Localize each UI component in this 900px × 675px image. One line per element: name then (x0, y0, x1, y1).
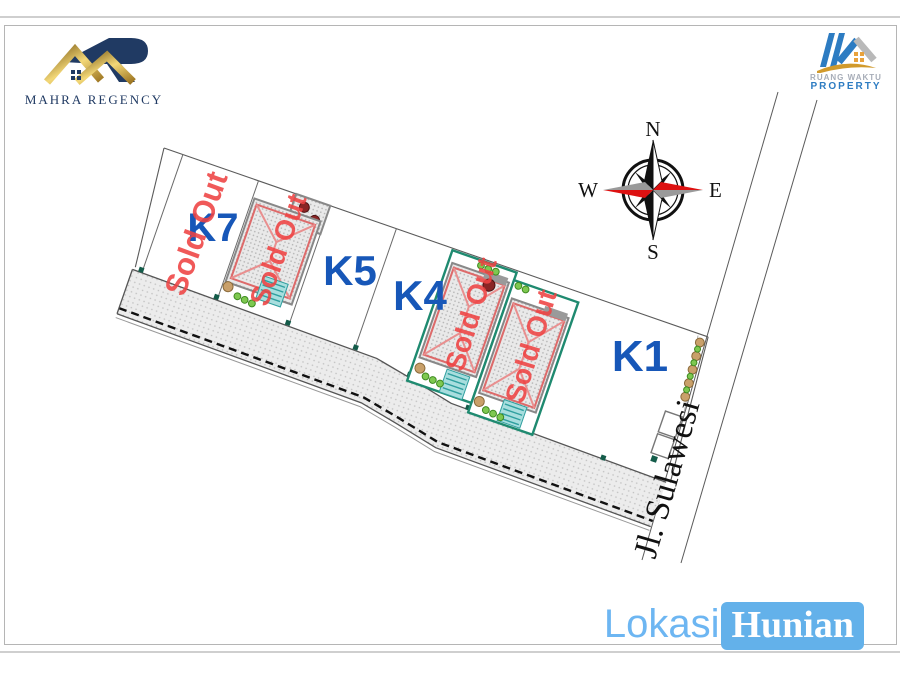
site-plan: K7 K5 K4 K1 Sold Out Sold Out Sold Out S… (0, 0, 900, 675)
compass-main-points (603, 140, 703, 240)
wordmark-hunian-badge: Hunian (721, 602, 864, 650)
lokasi-hunian-wordmark: Lokasi Hunian (604, 602, 864, 650)
compass-rose: N S W E (578, 117, 722, 264)
road-surface (108, 269, 674, 526)
compass-s: S (647, 240, 659, 264)
street-right-edge (681, 100, 817, 563)
road (107, 269, 674, 530)
compass-e: E (709, 178, 722, 202)
wordmark-lokasi: Lokasi (604, 602, 720, 647)
plot-label-k4: K4 (393, 272, 447, 319)
plot-label-k5: K5 (323, 247, 377, 294)
compass-n: N (645, 117, 660, 141)
compass-w: W (578, 178, 598, 202)
plot-label-k1: K1 (612, 332, 668, 381)
